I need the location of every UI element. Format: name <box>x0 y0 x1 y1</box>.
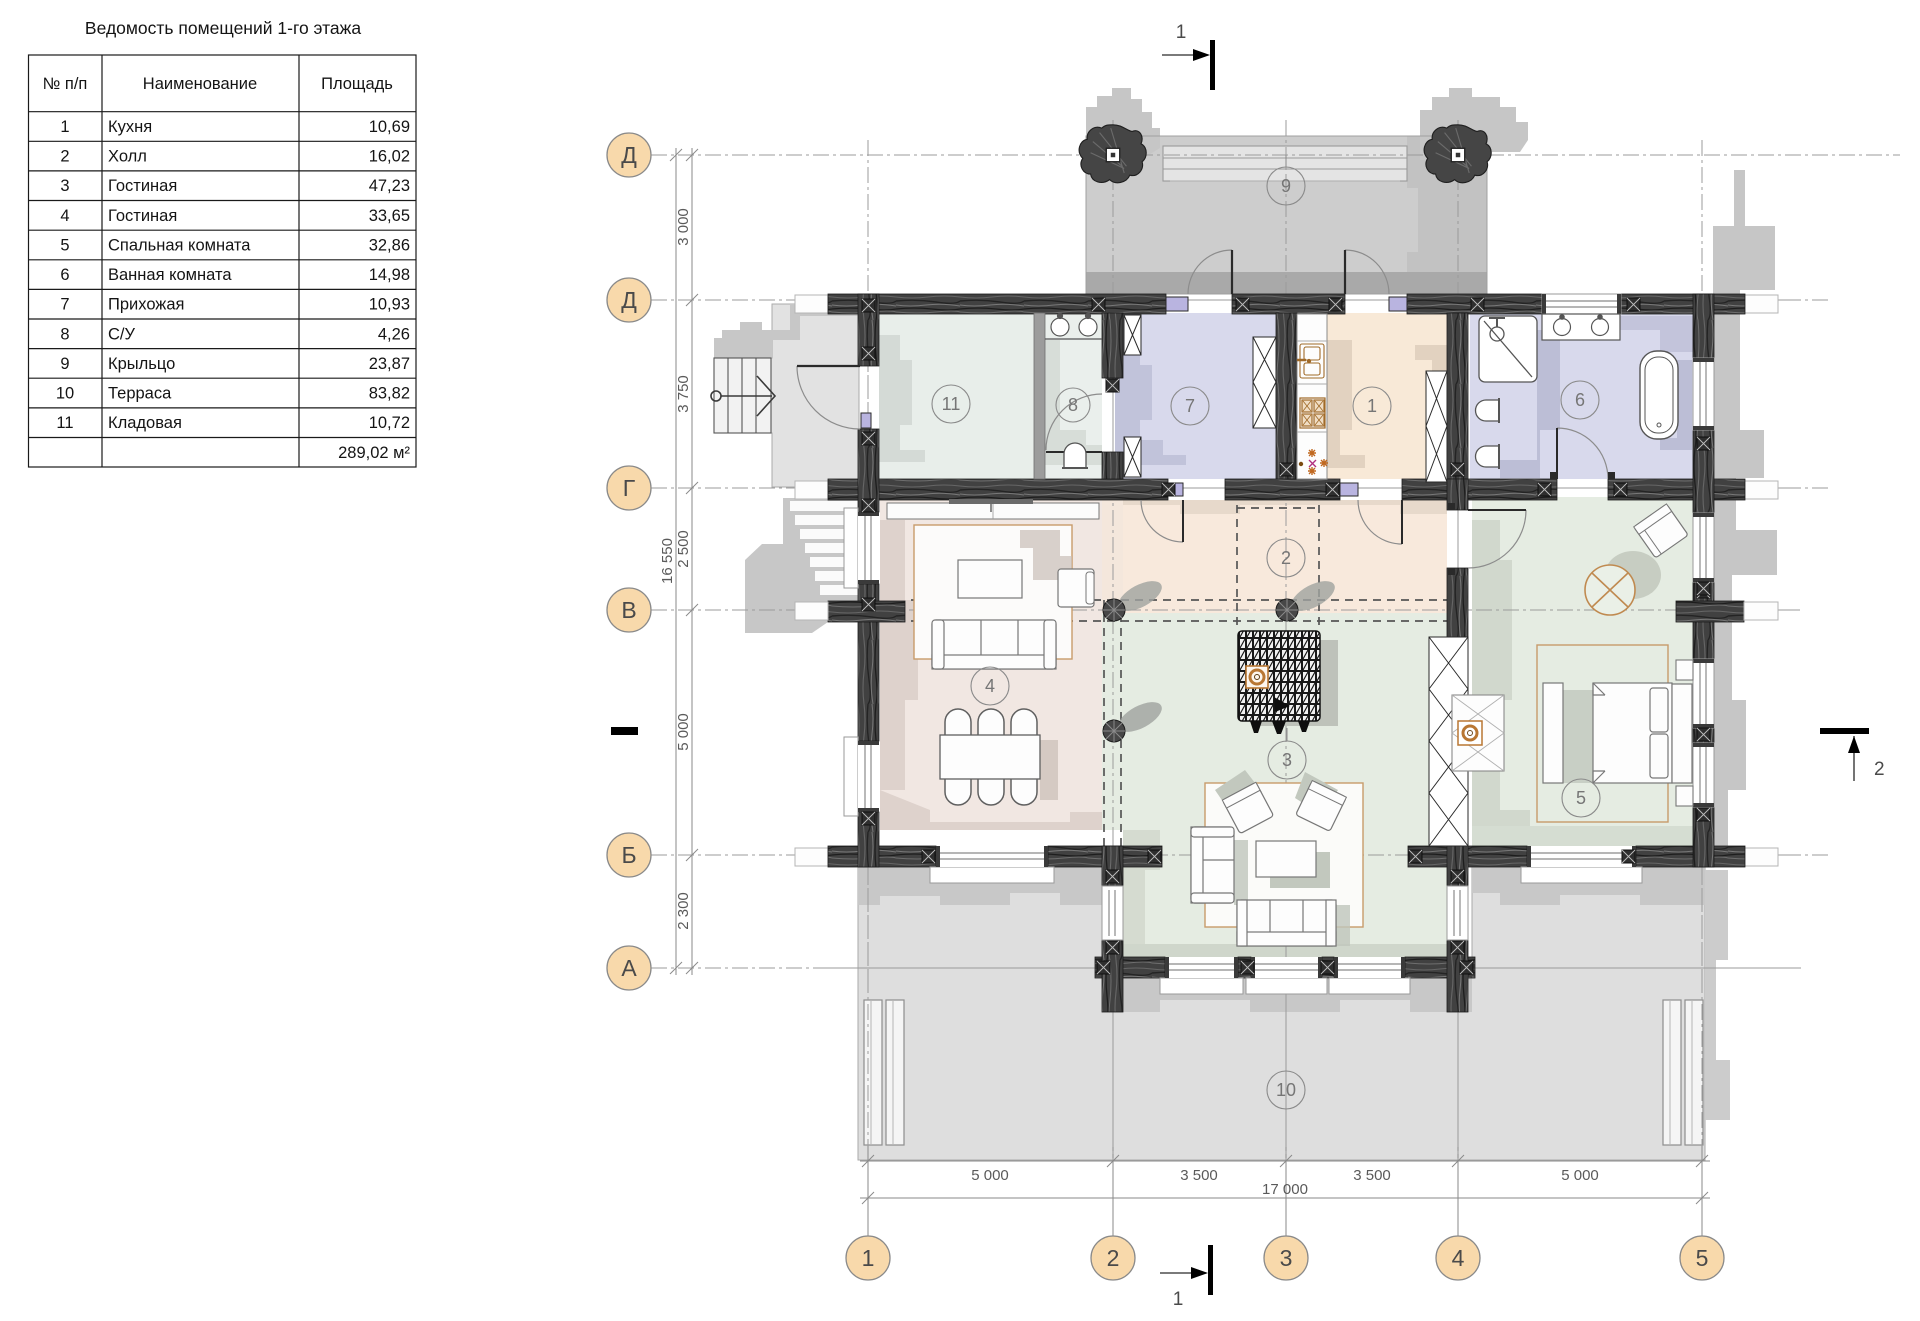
svg-text:6: 6 <box>1575 390 1585 410</box>
svg-text:289,02 м²: 289,02 м² <box>338 444 410 462</box>
svg-text:1: 1 <box>1173 1289 1184 1310</box>
svg-text:5 000: 5 000 <box>1561 1167 1599 1184</box>
svg-text:Д: Д <box>621 287 637 313</box>
svg-text:8: 8 <box>1068 395 1078 415</box>
svg-text:9: 9 <box>1281 176 1291 196</box>
svg-text:С/У: С/У <box>108 325 136 343</box>
svg-text:3: 3 <box>1282 750 1292 770</box>
svg-text:10: 10 <box>1276 1080 1296 1100</box>
svg-text:3: 3 <box>1280 1245 1293 1271</box>
svg-text:11: 11 <box>942 394 961 414</box>
svg-text:3: 3 <box>60 177 69 195</box>
svg-text:2: 2 <box>1281 548 1291 568</box>
svg-text:3 500: 3 500 <box>1180 1167 1218 1184</box>
svg-text:1: 1 <box>862 1245 875 1271</box>
svg-text:3 500: 3 500 <box>1353 1167 1391 1184</box>
svg-text:6: 6 <box>60 266 69 284</box>
svg-text:10,93: 10,93 <box>369 296 410 314</box>
svg-text:Гостиная: Гостиная <box>108 207 177 225</box>
svg-text:Наименование: Наименование <box>143 75 257 93</box>
svg-text:4,26: 4,26 <box>378 325 410 343</box>
svg-text:А: А <box>621 955 637 981</box>
svg-text:7: 7 <box>60 296 69 314</box>
svg-text:Холл: Холл <box>108 148 147 166</box>
svg-text:1: 1 <box>60 118 69 136</box>
svg-text:47,23: 47,23 <box>369 177 410 195</box>
svg-text:Д: Д <box>621 142 637 168</box>
svg-text:Г: Г <box>623 475 636 501</box>
svg-text:14,98: 14,98 <box>369 266 410 284</box>
svg-text:10,72: 10,72 <box>369 414 410 432</box>
svg-text:11: 11 <box>56 414 73 432</box>
svg-text:4: 4 <box>60 207 69 225</box>
svg-text:Гостиная: Гостиная <box>108 177 177 195</box>
svg-text:Терраса: Терраса <box>108 385 172 403</box>
svg-text:83,82: 83,82 <box>369 385 410 403</box>
svg-text:2: 2 <box>60 148 69 166</box>
svg-text:Ведомость помещений 1-го этажа: Ведомость помещений 1-го этажа <box>85 18 361 38</box>
svg-text:16 550: 16 550 <box>659 538 676 584</box>
svg-text:8: 8 <box>60 325 69 343</box>
svg-text:5: 5 <box>1576 788 1586 808</box>
svg-text:4: 4 <box>1452 1245 1465 1271</box>
svg-text:5: 5 <box>60 237 69 255</box>
svg-text:9: 9 <box>60 355 69 373</box>
svg-text:Кухня: Кухня <box>108 118 152 136</box>
svg-text:2: 2 <box>1874 759 1885 780</box>
svg-text:Кладовая: Кладовая <box>108 414 182 432</box>
svg-text:17 000: 17 000 <box>1262 1181 1308 1198</box>
svg-text:3 000: 3 000 <box>675 208 692 246</box>
svg-text:Прихожая: Прихожая <box>108 296 184 314</box>
svg-text:2 500: 2 500 <box>675 530 692 568</box>
svg-text:Площадь: Площадь <box>321 75 393 93</box>
svg-text:В: В <box>621 597 636 623</box>
svg-text:16,02: 16,02 <box>369 148 410 166</box>
svg-text:33,65: 33,65 <box>369 207 410 225</box>
svg-text:4: 4 <box>985 676 995 696</box>
svg-text:Спальная комната: Спальная комната <box>108 237 251 255</box>
svg-text:3 750: 3 750 <box>675 375 692 413</box>
svg-text:5: 5 <box>1696 1245 1709 1271</box>
svg-text:10: 10 <box>56 385 74 403</box>
svg-text:2 300: 2 300 <box>675 892 692 930</box>
svg-text:Ванная комната: Ванная комната <box>108 266 232 284</box>
svg-text:10,69: 10,69 <box>369 118 410 136</box>
svg-text:Б: Б <box>621 842 636 868</box>
svg-text:2: 2 <box>1107 1245 1120 1271</box>
svg-text:5 000: 5 000 <box>675 713 692 751</box>
svg-text:Крыльцо: Крыльцо <box>108 355 175 373</box>
svg-text:1: 1 <box>1176 22 1187 43</box>
svg-text:23,87: 23,87 <box>369 355 410 373</box>
svg-text:5 000: 5 000 <box>971 1167 1009 1184</box>
svg-text:7: 7 <box>1185 396 1195 416</box>
svg-text:32,86: 32,86 <box>369 237 410 255</box>
svg-text:1: 1 <box>1367 396 1377 416</box>
svg-text:№ п/п: № п/п <box>43 75 88 93</box>
